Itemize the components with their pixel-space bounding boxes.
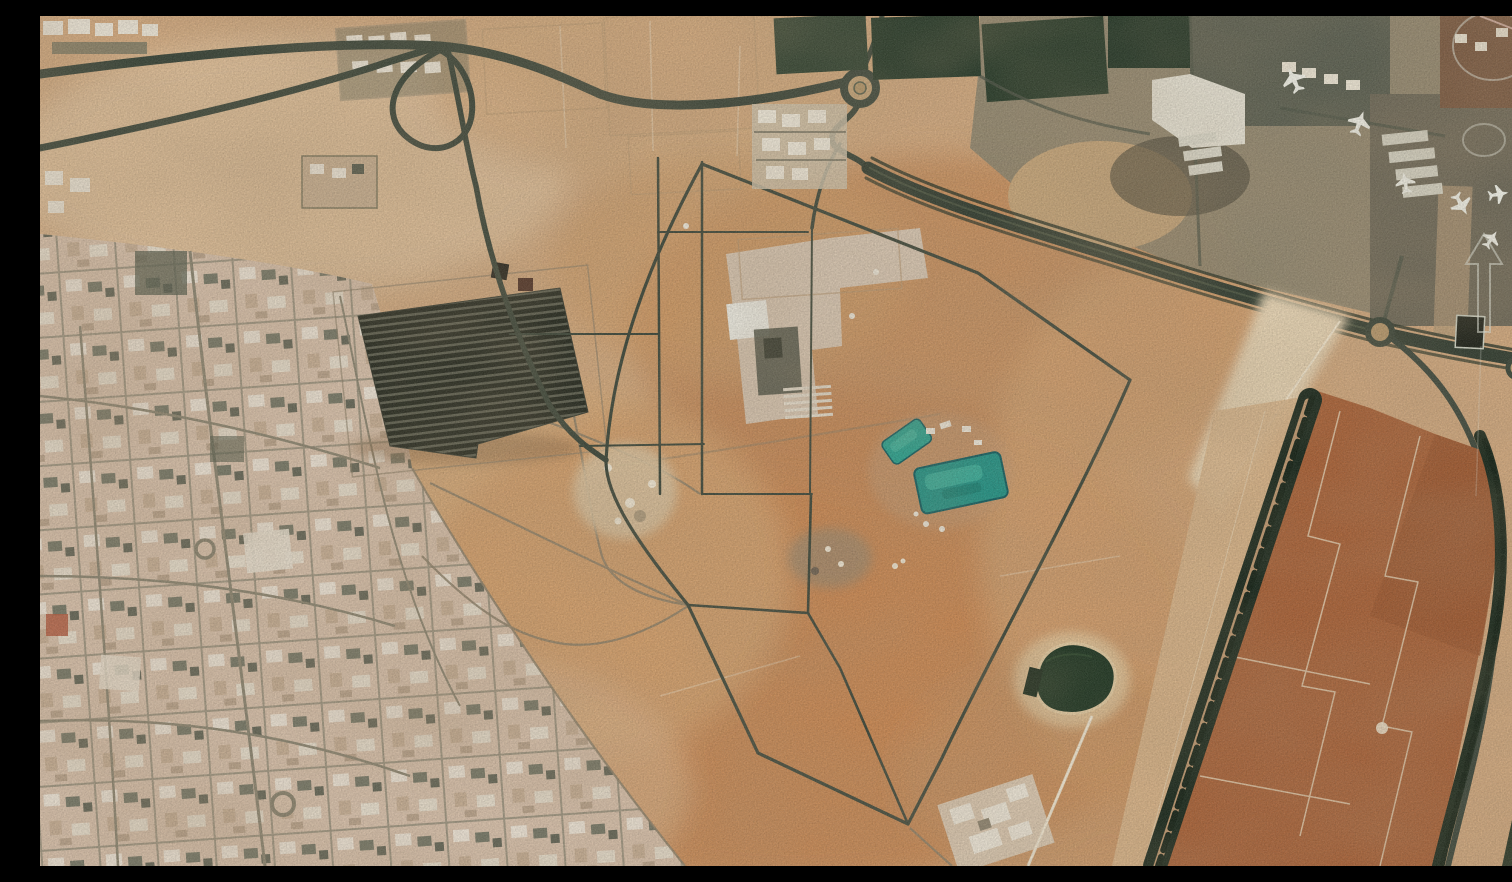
satellite-canvas: Satellite view — desert facility with ai… — [40, 16, 1512, 866]
satellite-image: Satellite view — desert facility with ai… — [40, 16, 1512, 866]
grain-overlay — [40, 16, 1512, 866]
